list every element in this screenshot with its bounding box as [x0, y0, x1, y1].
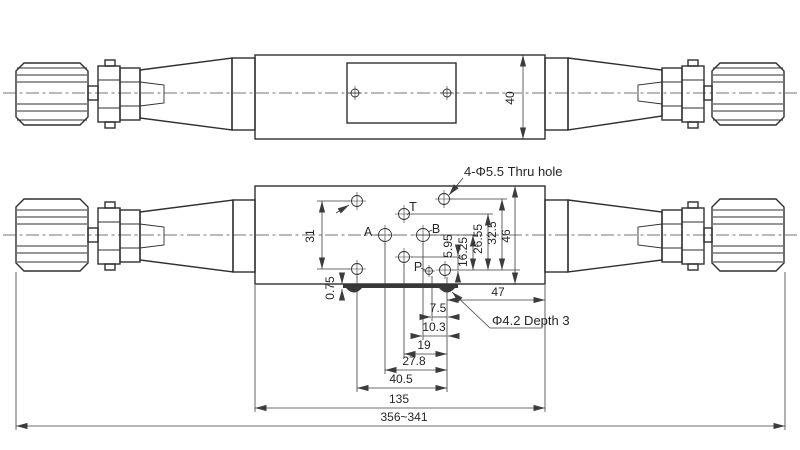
left-bonnet-bottom-view: [140, 200, 255, 272]
note-pin-hole: Φ4.2 Depth 3: [452, 292, 570, 328]
dim-b-col-offset-label: 10.3: [422, 320, 446, 334]
dim-p-col-offset-label: 7.5: [430, 301, 447, 315]
left-hexnut-top-view: [120, 68, 140, 120]
dim-a-col-offset-label: 27.8: [402, 354, 426, 368]
dim-bolt-col-span: 40.5: [357, 372, 447, 388]
dim-plate-protrusion-label: 0.75: [323, 276, 337, 300]
dim-p-row-to-top-label: 32.5: [485, 221, 499, 245]
top-view: 40: [3, 55, 797, 139]
right-locknut-bottom-view: [682, 202, 704, 270]
thru-hole-top-left: [348, 192, 366, 210]
dim-t-col-offset: 19: [404, 338, 447, 354]
dim-body-height: 40: [503, 55, 523, 139]
port-label-a: A: [364, 225, 373, 239]
dim-p-row-to-ab-label: 16.25: [456, 237, 470, 267]
note-thru-hole: 4-Φ5.5 Thru hole: [336, 164, 563, 213]
port-label-p: P: [414, 260, 422, 274]
left-bonnet-top-view: [140, 58, 255, 130]
dim-p-row-to-t-label: 26.55: [471, 224, 485, 254]
technical-drawing-canvas: 40: [0, 0, 800, 450]
thru-hole-bottom-right: [436, 261, 454, 279]
dim-b-col-offset: 10.3: [414, 320, 456, 336]
gasket-face: [343, 285, 458, 293]
dimensions: 31 0.75 5.95 16.25 26.55 32.5: [16, 164, 785, 430]
right-hexnut-top-view: [662, 68, 682, 120]
dim-p-col-offset: 7.5: [423, 301, 456, 317]
right-bonnet-top-view: [545, 58, 662, 130]
dim-body-width: 46: [499, 186, 515, 284]
port-label-b: B: [432, 222, 440, 236]
dim-a-col-offset: 27.8: [385, 354, 447, 370]
left-locknut-bottom-view: [98, 202, 120, 270]
dim-hole-to-right-edge: 47: [447, 285, 545, 300]
bottom-view: T A B P: [3, 186, 797, 293]
dim-overall-length: 356~341: [16, 410, 785, 426]
dim-body-height-label: 40: [503, 91, 517, 105]
right-bonnet-bottom-view: [545, 200, 662, 272]
valve-body-top-view: [255, 55, 545, 139]
left-knob-top-view: [16, 63, 88, 125]
dim-body-length: 135: [255, 392, 545, 408]
mid-hole: [395, 248, 413, 266]
dim-overall-length-label: 356~341: [380, 410, 427, 424]
dim-body-length-label: 135: [389, 392, 409, 406]
left-hexnut-bottom-view: [120, 210, 140, 262]
dim-hole-to-right-edge-label: 47: [491, 285, 505, 299]
dim-plate-protrusion: 0.75: [323, 276, 342, 300]
note-thru-hole-label: 4-Φ5.5 Thru hole: [464, 164, 563, 179]
dim-p-row-to-mid-label: 5.95: [441, 234, 455, 258]
note-pin-hole-label: Φ4.2 Depth 3: [492, 313, 570, 328]
locating-bump-left: [346, 288, 362, 293]
dim-bolt-col-span-label: 40.5: [389, 372, 413, 386]
dim-t-col-offset-label: 19: [417, 338, 431, 352]
right-knob-top-view: [712, 63, 784, 125]
left-locknut-top-view: [98, 60, 120, 128]
port-hole-a: [375, 225, 395, 245]
port-label-t: T: [409, 200, 417, 214]
thru-hole-bottom-left: [348, 260, 366, 278]
right-hexnut-bottom-view: [662, 210, 682, 262]
drawing-page: 40: [0, 0, 800, 450]
port-hole-p: [423, 265, 435, 277]
dim-left-hole-spacing-label: 31: [303, 229, 317, 243]
right-locknut-top-view: [682, 60, 704, 128]
dim-body-width-label: 46: [499, 229, 513, 243]
